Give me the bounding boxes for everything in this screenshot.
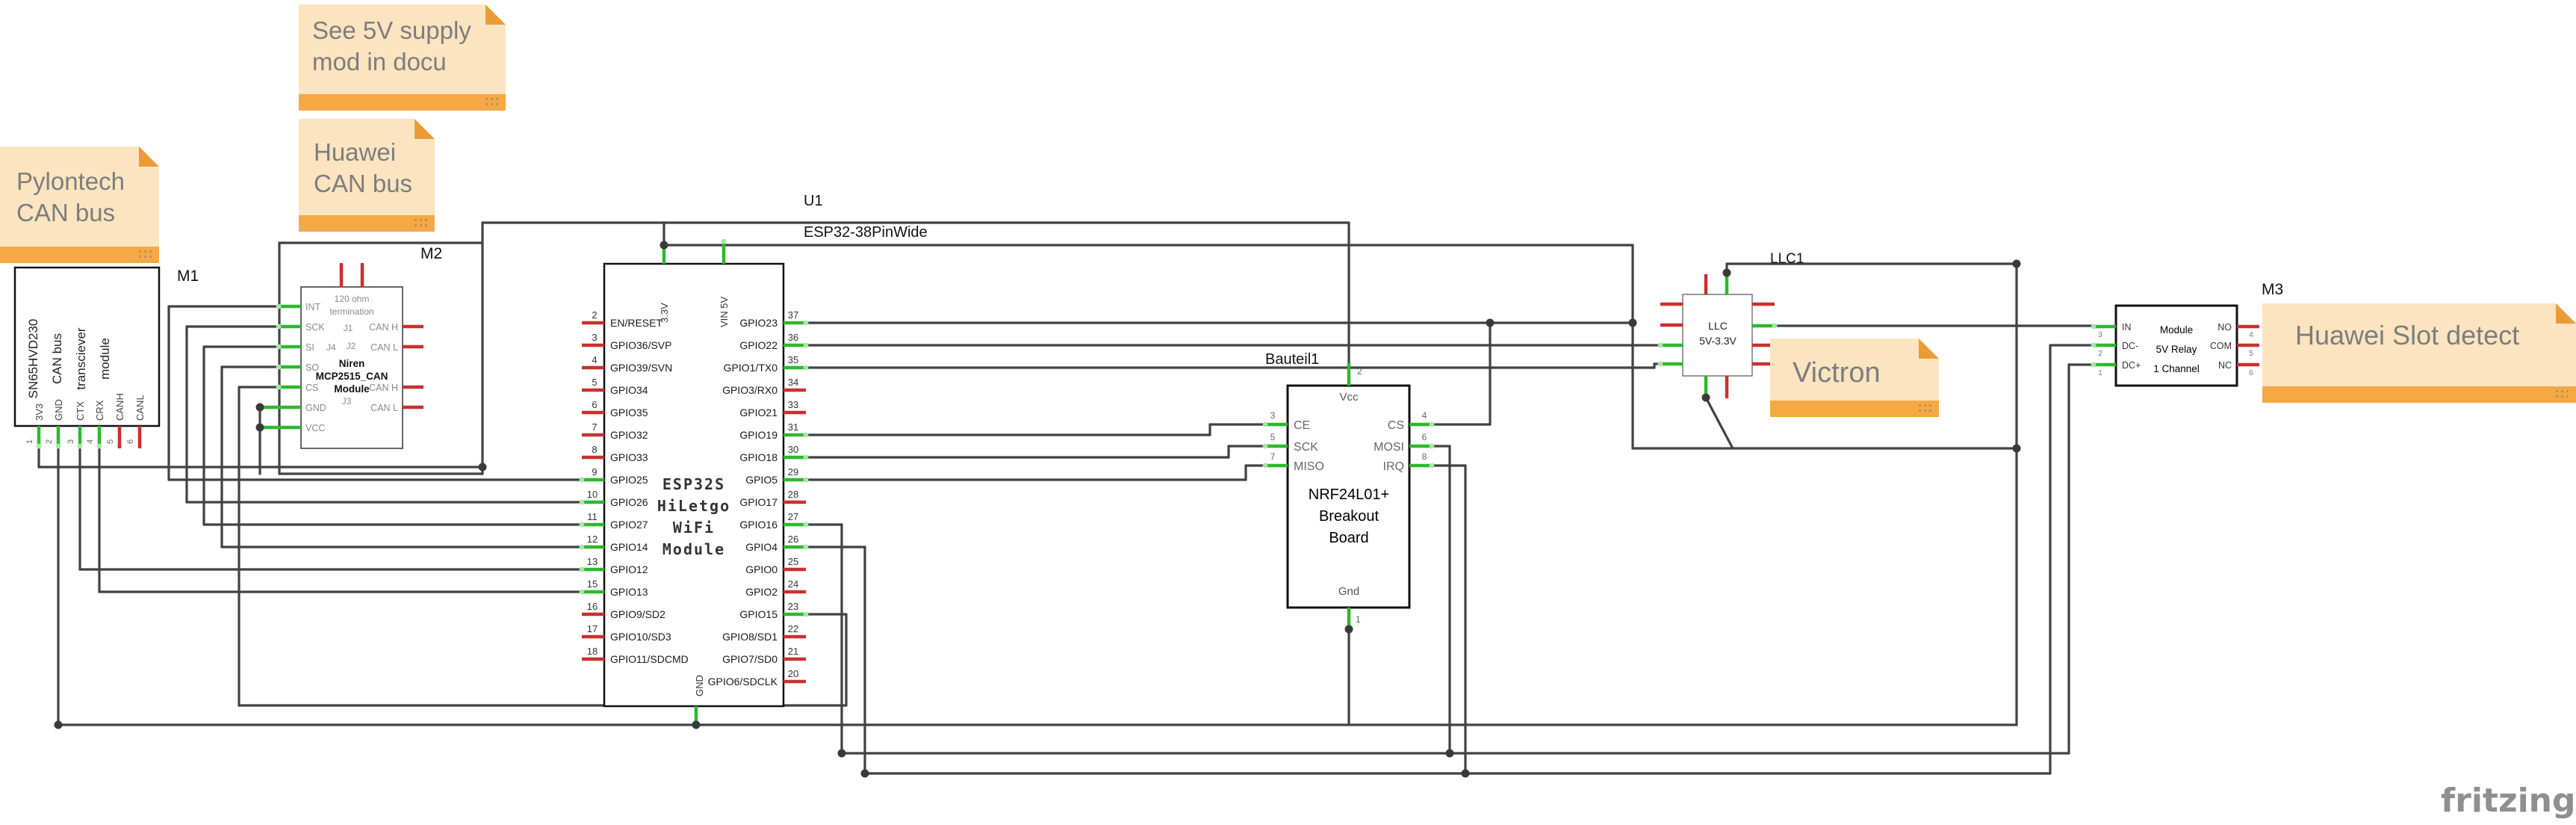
pin-end-cap: [804, 365, 809, 371]
pin-text: VCC: [305, 423, 325, 433]
component-ref-u1: U1: [804, 193, 823, 210]
pin-text: 4: [2249, 331, 2253, 339]
pin-text: SCK: [1294, 441, 1318, 454]
junction-dot: [55, 721, 63, 729]
pin-text: 8: [592, 444, 597, 455]
pin-text: GPIO14: [610, 541, 648, 553]
pin-end-cap: [804, 455, 809, 460]
junction-dot: [1446, 750, 1454, 758]
pin-end-cap: [97, 444, 102, 449]
component-ref-m2: M2: [420, 245, 442, 263]
pin-text: GPIO26: [610, 496, 648, 508]
pin-text: CAN H: [369, 383, 398, 393]
junction-dot: [692, 721, 701, 729]
pin-text: 2: [592, 309, 597, 321]
pin-text: 1: [1356, 614, 1361, 625]
pin-text: 9: [592, 466, 597, 478]
pin-end-cap: [276, 324, 282, 330]
sticky-note-huawei-can[interactable]: Huawei CAN bus: [299, 119, 435, 232]
pin-text: NRF24L01+: [1309, 486, 1389, 503]
pin-text: module: [98, 338, 112, 380]
pin-text: MOSI: [1374, 441, 1404, 454]
component-ref-bauteil1: Bauteil1: [1265, 351, 1319, 368]
pin-text: GPIO35: [610, 407, 648, 418]
pin-end-cap: [1263, 444, 1268, 449]
pin-end-cap: [276, 365, 282, 370]
pin-text: GPIO19: [739, 429, 778, 441]
pin-end-cap: [580, 590, 585, 595]
pin-text: ESP32S: [662, 475, 725, 493]
pin-text: 11: [587, 511, 598, 522]
pin-end-cap: [2091, 343, 2097, 348]
drag-dots-icon[interactable]: [137, 249, 153, 260]
pin-text: DC-: [2122, 341, 2138, 351]
pin-text: termination: [329, 306, 373, 317]
sticky-note-bar[interactable]: [299, 215, 435, 232]
pin-text: CE: [1294, 419, 1310, 432]
pin-text: GPIO10/SD3: [610, 631, 671, 643]
pin-text: 2: [45, 439, 54, 444]
pin-text: INT: [305, 302, 321, 312]
junction-dot: [861, 770, 869, 778]
junction-dot: [479, 463, 487, 472]
pin-text: GPIO25: [610, 474, 648, 486]
pin-text: GPIO2: [745, 586, 778, 598]
junction-dot: [1345, 625, 1353, 634]
pin-text: GPIO27: [610, 519, 648, 531]
pin-text: GPIO36/SVP: [610, 339, 671, 351]
pin-text: 5: [1270, 432, 1276, 442]
pin-text: 25: [788, 556, 798, 567]
pin-text: GPIO34: [610, 384, 648, 396]
pin-text: 20: [788, 668, 798, 679]
pin-end-cap: [78, 444, 83, 449]
sticky-note-text: Victron: [1793, 355, 1931, 392]
pin-text: transciever: [74, 327, 88, 389]
pin-text: CANH: [114, 393, 125, 421]
pin-text: 5: [2249, 350, 2253, 358]
pin-text: GPIO32: [610, 429, 648, 441]
component-ref-m3: M3: [2262, 281, 2283, 299]
pin-text: IN: [2122, 322, 2132, 333]
pin-text: GPIO33: [610, 451, 648, 463]
pin-end-cap: [804, 522, 809, 528]
pin-end-cap: [721, 239, 727, 244]
pin-text: GPIO18: [739, 451, 778, 463]
drag-dots-icon[interactable]: [413, 217, 429, 229]
pin-text: J2: [347, 341, 356, 351]
pin-text: 36: [788, 332, 798, 343]
pin-end-cap: [1430, 444, 1435, 449]
pin-text: NC: [2218, 360, 2232, 371]
pin-end-cap: [1430, 463, 1435, 469]
pin-text: MCP2515_CAN: [316, 371, 388, 382]
pin-text: CAN H: [369, 322, 398, 333]
pin-text: 17: [587, 623, 598, 634]
pin-text: 12: [587, 534, 598, 545]
junction-dot: [256, 404, 264, 412]
pin-end-cap: [1658, 362, 1663, 367]
pin-text: Vcc: [1339, 391, 1359, 404]
pin-text: 27: [788, 511, 798, 522]
pin-text: 34: [788, 377, 798, 388]
pin-text: CS: [305, 383, 318, 393]
pin-text: 6: [592, 399, 597, 410]
pin-text: GPIO13: [610, 586, 648, 598]
pin-text: Module: [334, 383, 370, 395]
pin-end-cap: [580, 545, 585, 550]
pin-text: 1: [25, 439, 34, 444]
pin-end-cap: [1772, 324, 1778, 329]
pin-text: J4: [326, 342, 336, 353]
pin-end-cap: [580, 567, 585, 572]
pin-text: GPIO9/SD2: [610, 608, 665, 620]
pin-text: J3: [342, 396, 352, 407]
pin-end-cap: [804, 478, 809, 483]
pin-text: GPIO17: [739, 496, 778, 508]
pin-text: GPIO8/SD1: [722, 631, 778, 643]
pin-text: CS: [1388, 419, 1404, 432]
pin-text: 28: [788, 489, 798, 500]
pin-text: CAN L: [370, 403, 398, 413]
pin-text: 4: [592, 354, 597, 365]
sticky-note-bar[interactable]: [2262, 386, 2576, 403]
pin-text: GPIO0: [745, 563, 778, 575]
component-ref-m1: M1: [177, 268, 199, 285]
junction-dot: [1462, 770, 1470, 778]
pin-text: J1: [344, 323, 353, 333]
pin-text: 10: [587, 489, 598, 500]
pin-end-cap: [2091, 362, 2097, 368]
pin-text: GPIO15: [739, 608, 778, 620]
junction-dot: [2013, 260, 2021, 268]
pin-text: 31: [788, 421, 798, 433]
sticky-note-bar[interactable]: [1770, 401, 1939, 417]
pin-text: GPIO4: [745, 541, 778, 553]
pin-text: MISO: [1294, 460, 1324, 473]
pin-text: Breakout: [1319, 508, 1379, 525]
pin-text: GPIO21: [739, 407, 778, 418]
pin-text: 7: [592, 421, 597, 433]
pin-text: 5V Relay: [2156, 344, 2197, 355]
pin-text: GPIO39/SVN: [610, 362, 672, 374]
sticky-note-bar[interactable]: [0, 247, 159, 263]
sticky-note-victron[interactable]: Victron: [1770, 339, 1939, 417]
pin-end-cap: [1658, 343, 1663, 348]
pin-text: CTX: [75, 401, 86, 421]
pin-text: GPIO1/TX0: [724, 362, 778, 374]
junction-dot: [2013, 445, 2021, 453]
pin-text: Niren: [339, 358, 365, 369]
pin-text: 26: [788, 534, 798, 545]
pin-text: 6: [2249, 369, 2253, 377]
junction-dot: [1702, 394, 1710, 402]
pin-text: COM: [2210, 341, 2232, 351]
drag-dots-icon[interactable]: [484, 96, 500, 108]
sticky-note-5v-supply[interactable]: See 5V supply mod in docu: [299, 4, 506, 111]
pin-text: 3: [592, 332, 597, 343]
schematic-canvas: SN65HVD230CAN bustranscievermodule3V3GND…: [0, 0, 2576, 825]
junction-dot: [1629, 319, 1637, 327]
pin-text: 15: [587, 578, 598, 590]
sticky-note-text: Huawei CAN bus: [314, 137, 427, 200]
pin-text: GPIO12: [610, 563, 648, 575]
pin-end-cap: [580, 478, 585, 483]
pin-end-cap: [1263, 463, 1268, 469]
pin-text: 1 Channel: [2153, 363, 2200, 374]
pin-text: GPIO16: [739, 519, 778, 531]
pin-text: 29: [788, 466, 798, 478]
pin-text: NO: [2217, 322, 2232, 333]
pin-text: 3.3V: [659, 303, 670, 323]
sticky-note-text: See 5V supply mod in docu: [312, 15, 498, 78]
pin-text: VIN 5V: [719, 296, 730, 327]
junction-dot: [256, 424, 264, 432]
pin-end-cap: [56, 444, 61, 449]
fritzing-logo: fritzing: [2441, 782, 2575, 820]
pin-text: 30: [788, 444, 798, 455]
pin-end-cap: [804, 321, 809, 326]
pin-text: GPIO6/SDCLK: [708, 676, 778, 687]
pin-text: 13: [587, 556, 598, 567]
pin-text: SI: [305, 342, 314, 353]
pin-text: IRQ: [1383, 460, 1404, 473]
pin-text: WiFi: [673, 519, 715, 537]
pin-text: CAN L: [370, 342, 398, 353]
pin-text: LLC: [1708, 320, 1728, 332]
pin-text: 37: [788, 309, 798, 321]
pin-text: 18: [587, 646, 598, 657]
pin-text: GPIO7/SD0: [722, 653, 778, 665]
pin-text: SCK: [305, 322, 325, 333]
pin-end-cap: [276, 344, 282, 350]
pin-end-cap: [804, 545, 809, 550]
pin-end-cap: [580, 500, 585, 505]
pin-end-cap: [804, 343, 809, 348]
pin-text: 6: [126, 439, 135, 444]
pin-text: GND: [305, 403, 326, 413]
pin-text: 1: [2098, 369, 2102, 377]
pin-text: 5V-3.3V: [1699, 335, 1737, 347]
pin-text: GPIO22: [739, 339, 778, 351]
drag-dots-icon[interactable]: [1917, 403, 1933, 414]
pin-text: 4: [86, 439, 95, 444]
pin-text: DC+: [2122, 360, 2141, 371]
junction-dot: [1486, 319, 1495, 327]
pin-text: 3: [1270, 410, 1276, 421]
pin-text: 22: [788, 623, 798, 634]
pin-end-cap: [276, 385, 282, 390]
pin-text: GPIO11/SDCMD: [610, 653, 689, 665]
pin-text: HiLetgo: [657, 497, 730, 515]
pin-end-cap: [2091, 324, 2097, 330]
pin-text: 8: [1422, 451, 1427, 462]
pin-text: 2: [1357, 366, 1362, 377]
pin-text: EN/RESET: [610, 317, 662, 329]
wire[interactable]: [1706, 398, 1733, 448]
pin-text: 4: [1422, 410, 1427, 421]
pin-text: 5: [592, 377, 597, 388]
pin-text: 2: [2098, 350, 2102, 358]
sticky-note-text: Pylontech CAN bus: [16, 166, 152, 229]
pin-text: Module: [662, 540, 725, 558]
component-ref-llc1: LLC1: [1770, 251, 1804, 268]
pin-text: GND: [53, 399, 64, 421]
pin-text: 24: [788, 578, 798, 590]
pin-text: 21: [788, 646, 798, 657]
pin-end-cap: [37, 444, 42, 449]
pin-text: 35: [788, 354, 798, 365]
sticky-note-pylontech[interactable]: Pylontech CAN bus: [0, 146, 159, 263]
pin-text: 120 ohm: [335, 294, 370, 304]
pin-text: GPIO23: [739, 317, 778, 329]
pin-text: CAN bus: [50, 333, 64, 384]
pin-text: GND: [694, 675, 705, 696]
pin-text: Board: [1329, 530, 1368, 546]
sticky-note-bar[interactable]: [299, 94, 506, 111]
pin-text: 3V3: [34, 404, 45, 421]
pin-text: GPIO3/RX0: [722, 384, 778, 396]
sticky-note-text: Huawei Slot detect: [2295, 318, 2569, 353]
component-type-esp32: ESP32-38PinWide: [804, 224, 928, 241]
pin-text: 3: [2098, 331, 2102, 339]
pin-end-cap: [580, 522, 585, 528]
pin-text: 16: [587, 601, 598, 612]
pin-text: 3: [66, 439, 75, 444]
pin-end-cap: [804, 433, 809, 438]
sticky-note-huawei-slot[interactable]: Huawei Slot detect: [2262, 303, 2576, 403]
pin-text: Gnd: [1338, 585, 1359, 598]
junction-dot: [660, 241, 668, 250]
pin-end-cap: [1263, 422, 1268, 427]
pin-end-cap: [276, 304, 282, 309]
drag-dots-icon[interactable]: [2554, 389, 2570, 400]
pin-text: 33: [788, 399, 798, 410]
pin-text: GPIO5: [745, 474, 778, 486]
pin-text: Module: [2160, 324, 2193, 336]
pin-text: 7: [1270, 451, 1276, 462]
pin-text: 23: [788, 601, 798, 612]
pin-text: 6: [1422, 432, 1427, 442]
pin-text: CANL: [134, 395, 146, 421]
pin-end-cap: [804, 612, 809, 617]
junction-dot: [1723, 269, 1731, 277]
pin-end-cap: [1430, 422, 1435, 427]
pin-text: 5: [106, 439, 115, 444]
junction-dot: [838, 750, 846, 758]
pin-text: SN65HVD230: [26, 319, 40, 399]
pin-text: CRX: [94, 400, 105, 421]
